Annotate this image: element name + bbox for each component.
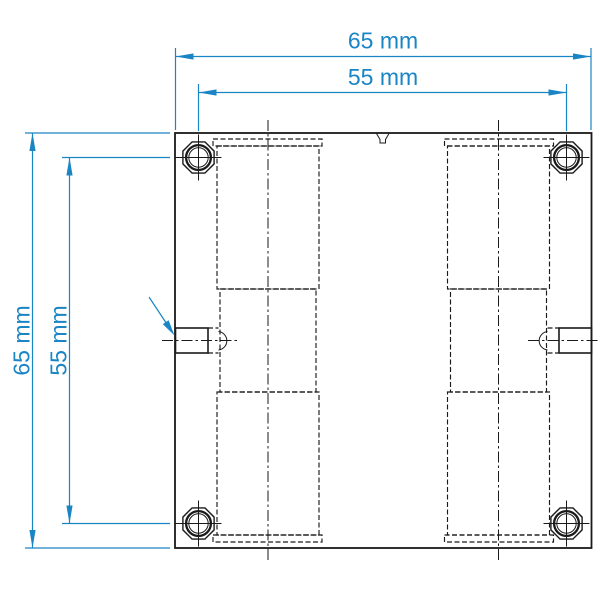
side-pin-right: [528, 328, 600, 353]
dimension-arrowhead-icon: [29, 530, 35, 548]
part-view: [149, 120, 600, 563]
dimension-label: 65 mm: [9, 305, 35, 375]
technical-drawing-canvas: 65 mm 55 mm 65 mm 55 mm: [0, 0, 600, 600]
pin-leader-arrow: [149, 297, 177, 337]
hidden-pocket-left: [213, 120, 322, 563]
dimension-arrowhead-icon: [66, 506, 72, 524]
corner-screw-top-left: [176, 135, 222, 181]
dimension-left-inner: 55 mm: [46, 158, 171, 524]
dimension-top-inner: 55 mm: [199, 64, 567, 131]
dimension-arrowhead-icon: [199, 89, 217, 95]
leader-line: [149, 297, 169, 327]
corner-screw-top-right: [544, 135, 590, 181]
dimension-left-outer: 65 mm: [9, 133, 171, 548]
dimension-arrowhead-icon: [549, 89, 567, 95]
side-pin-left: [162, 328, 238, 353]
dimension-arrowhead-icon: [66, 158, 72, 176]
hidden-pocket-right: [445, 120, 554, 563]
dimension-arrowhead-icon: [176, 53, 194, 59]
dimension-arrowhead-icon: [573, 53, 591, 59]
drawing-svg: 65 mm 55 mm 65 mm 55 mm: [0, 0, 600, 600]
dimension-label: 55 mm: [348, 64, 418, 90]
orientation-notch: [377, 134, 390, 144]
dimension-arrowhead-icon: [29, 133, 35, 151]
corner-screw-bottom-left: [176, 501, 222, 547]
dimension-label: 55 mm: [46, 305, 72, 375]
corner-screw-bottom-right: [544, 501, 590, 547]
dimension-label: 65 mm: [348, 28, 418, 54]
